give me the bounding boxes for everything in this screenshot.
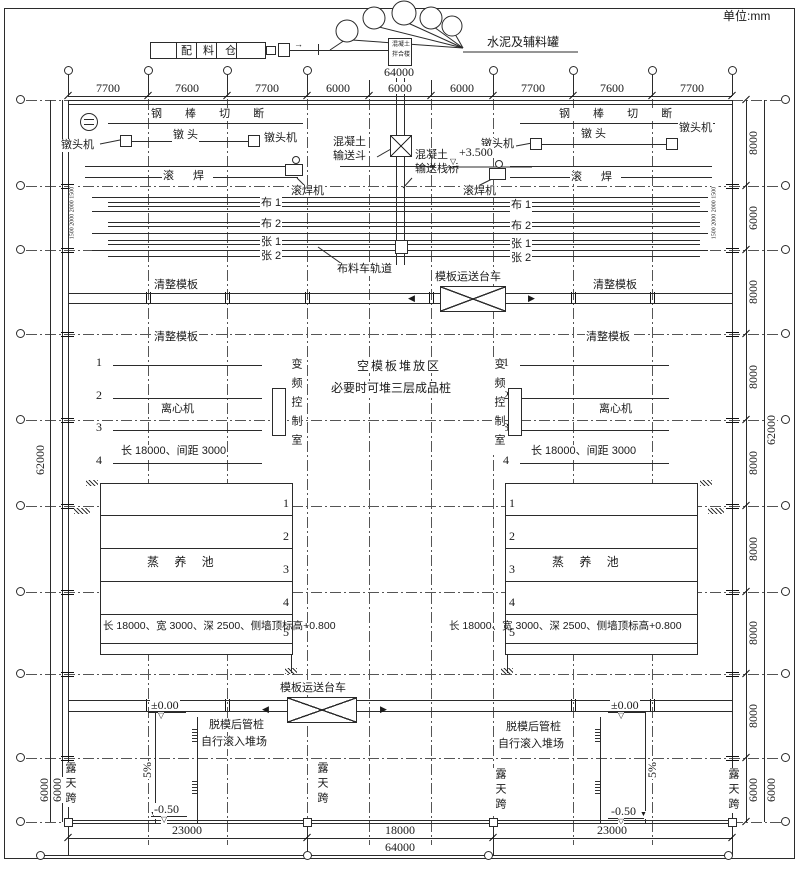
bottom-dim: 23000: [171, 824, 203, 836]
pool-divider: [505, 643, 698, 644]
heading-machine-label: 镦头机: [263, 132, 298, 145]
elevation-underline: [151, 816, 187, 817]
conveyor-arrow-icon: →: [294, 40, 303, 49]
grid-bubble: [781, 817, 790, 826]
bubble-stem: [732, 75, 733, 96]
grid-bubble: [303, 851, 312, 860]
grid-bubble: [16, 817, 25, 826]
grid-column-line: [369, 80, 370, 845]
track-arrow-left-icon: ◀: [408, 294, 415, 303]
heading-line: [542, 144, 666, 145]
top-dim: 7700: [95, 82, 121, 94]
yard-hatch: [595, 780, 600, 794]
roll-weld-label: 滚 焊: [570, 171, 621, 184]
hopper-label-1: 混凝土: [332, 136, 367, 149]
grid-bubble: [16, 95, 25, 104]
pool-divider: [505, 581, 698, 582]
formwork-trolley: [440, 286, 506, 312]
pool-hatch: [285, 668, 297, 674]
grid-bubble: [16, 181, 25, 190]
grid-bubble: [569, 66, 578, 75]
bottom-overall-line: [40, 855, 732, 856]
building-bottom-wall: [68, 820, 732, 821]
pool-hatch: [700, 480, 712, 486]
axis-tick: [726, 184, 739, 189]
silo-divider: [176, 42, 177, 59]
grid-bubble: [144, 66, 153, 75]
elevation-underline: [608, 818, 644, 819]
centrifuge-label: 离心机: [160, 403, 195, 416]
axis-tick: [61, 504, 74, 509]
grid-row-line: [732, 100, 784, 101]
axis-tick: [61, 248, 74, 253]
yard-hatch: [595, 728, 600, 742]
axis-tick: [61, 672, 74, 677]
axis-tick: [61, 418, 74, 423]
axis-tick: [726, 504, 739, 509]
right-bottom-dim: 6000: [747, 777, 759, 803]
pool-hatch: [86, 480, 98, 486]
grid-row-line: [26, 758, 784, 759]
payoff-detail: [84, 124, 94, 125]
bed-label-zhang2: 张 2: [260, 250, 282, 263]
track-arrow-right-icon: ▶: [528, 294, 535, 303]
steam-pool-label: 蒸 养 池: [551, 556, 626, 569]
pool-divider: [100, 614, 293, 615]
grid-bubble: [781, 329, 790, 338]
centrifuge-line: [113, 398, 262, 399]
elevation-underline: [148, 712, 186, 713]
left-dim-line: [50, 100, 51, 822]
grid-bubble: [223, 66, 232, 75]
bed-label-zhang1: 张 1: [510, 238, 532, 251]
left-overall-dim: 62000: [34, 444, 46, 476]
tank-circle: [392, 1, 416, 25]
mixing-tower-label-1: 混凝土: [390, 42, 412, 49]
mixing-tower-label-2: 拌合楼: [390, 52, 412, 59]
grid-row-line: [26, 822, 68, 823]
grid-row-line: [26, 334, 784, 335]
grid-square-marker: [489, 818, 498, 827]
roll-weld-line: [510, 166, 712, 167]
line-number: 1: [95, 356, 103, 368]
bed-label-bu1: 布 1: [260, 197, 282, 210]
clean-formwork-label: 清整模板: [153, 331, 199, 344]
factory-layout-drawing: 单位:mm: [0, 0, 800, 869]
bed-line: [92, 211, 708, 212]
payoff-detail: [84, 119, 94, 120]
grid-bubble: [781, 181, 790, 190]
distribution-cart: [395, 240, 408, 254]
axis-tick: [726, 590, 739, 595]
bubble-stem: [68, 75, 69, 96]
pool-number: 4: [508, 596, 516, 608]
right-dim: 8000: [747, 364, 759, 390]
grid-bubble: [728, 66, 737, 75]
axis-tick: [61, 756, 74, 761]
pool-divider: [100, 515, 293, 516]
grid-bubble: [16, 669, 25, 678]
axis-tick: [726, 418, 739, 423]
right-dim: 8000: [747, 279, 759, 305]
trolley-track: [68, 293, 732, 294]
concrete-hopper-box: [390, 135, 412, 157]
slope-label: 5%: [646, 761, 658, 779]
open-span-label: 露天跨: [63, 762, 76, 807]
elevation-zero: ±0.00: [610, 699, 640, 711]
bed-line: [92, 197, 708, 198]
elevation-neg: -0.50: [610, 805, 637, 817]
left-dim-line: [62, 100, 63, 822]
yard-line: [197, 717, 198, 823]
axis-tick: [726, 756, 739, 761]
pool-number: 2: [508, 530, 516, 542]
grid-bubble: [489, 66, 498, 75]
right-overall-dim-line: [764, 100, 765, 822]
bed-rail: [108, 222, 700, 223]
conveyor-hopper-box: [278, 43, 290, 57]
heading-machine-label: 镦头机: [678, 122, 713, 135]
axis-tick: [726, 332, 739, 337]
grid-row-line: [732, 822, 784, 823]
centrifuge-line: [520, 463, 669, 464]
axis-tick: [61, 332, 74, 337]
grid-row-line: [26, 420, 784, 421]
axis-tick: [61, 590, 74, 595]
bed-label-bu2: 布 2: [510, 220, 532, 233]
building-top-wall: [68, 100, 732, 101]
cart-track-label: 布料车轨道: [336, 263, 393, 276]
heading-label: 镦 头: [172, 129, 199, 142]
top-dim: 7700: [254, 82, 280, 94]
bed-label-zhang2: 张 2: [510, 252, 532, 265]
top-dim: 6000: [325, 82, 351, 94]
heading-machine-box: [120, 135, 132, 147]
centrifuge-line: [113, 365, 262, 366]
vfd-room-label: 变频控制室: [289, 358, 302, 453]
vfd-room-label: 变频控制室: [492, 358, 505, 453]
demold-label-1: 脱模后管桩: [505, 721, 562, 734]
pool-number: 4: [282, 596, 290, 608]
demold-label-2: 自行滚入堆场: [497, 738, 565, 751]
conveyor-line: [290, 50, 388, 51]
centrifuge-line: [113, 463, 262, 464]
bubble-stem: [148, 75, 149, 96]
pool-hatch: [708, 508, 724, 514]
elevation-zero: ±0.00: [150, 699, 180, 711]
yard-line: [600, 717, 601, 823]
track-arrow-right-icon: ▶: [380, 705, 387, 714]
bridge-elevation: +3.500: [458, 146, 494, 158]
vfd-room-box: [272, 388, 286, 436]
top-dim: 7600: [599, 82, 625, 94]
bubble-stem: [307, 75, 308, 96]
pool-divider: [505, 548, 698, 549]
grid-bubble: [781, 415, 790, 424]
line-number: 4: [95, 454, 103, 466]
heading-label: 镦 头: [580, 128, 607, 141]
grid-square-marker: [303, 818, 312, 827]
bed-edge-dims: 1500 2000 2000 1500: [70, 186, 77, 241]
tank-circle: [336, 20, 358, 42]
dim-extension: [68, 823, 69, 855]
grid-bubble: [781, 753, 790, 762]
trolley-track: [68, 303, 732, 304]
bridge-label-1: 混凝土: [414, 149, 449, 162]
top-dim-line: [68, 96, 732, 97]
bed-rail: [108, 206, 700, 207]
top-dim: 7700: [520, 82, 546, 94]
wire-payoff-machine: [80, 113, 98, 131]
right-dim: 8000: [747, 450, 759, 476]
slope-label: 5%: [141, 761, 153, 779]
grid-bubble: [36, 851, 45, 860]
grid-bubble: [16, 415, 25, 424]
pool-number: 2: [282, 530, 290, 542]
pool-divider: [100, 643, 293, 644]
batching-silo-label: 配 料 仓: [180, 45, 241, 58]
steam-pool-note: 长 18000、宽 3000、深 2500、侧墙顶标高+0.800: [448, 620, 683, 633]
centrifuge-line: [520, 398, 669, 399]
bottom-overall-dim: 64000: [384, 841, 416, 853]
grid-row-line: [26, 186, 784, 187]
bed-rail: [108, 256, 700, 257]
bottom-dim: 18000: [384, 824, 416, 836]
bubble-stem: [652, 75, 653, 96]
top-dim: 7600: [174, 82, 200, 94]
pool-hatch: [74, 508, 90, 514]
pool-divider: [100, 548, 293, 549]
stacking-area-label-1: 空模板堆放区: [356, 360, 442, 373]
grid-column-line: [431, 80, 432, 845]
line-number: 4: [502, 454, 510, 466]
building-right-wall: [732, 100, 733, 823]
yard-hatch: [192, 728, 197, 742]
roll-welder-head: [495, 160, 503, 168]
cutting-bench-line: [108, 123, 303, 124]
grid-square-marker: [64, 818, 73, 827]
steam-pool-label: 蒸 养 池: [146, 556, 221, 569]
right-dim: 6000: [747, 205, 759, 231]
right-dim: 8000: [747, 130, 759, 156]
grid-bubble: [16, 245, 25, 254]
grid-bubble: [303, 66, 312, 75]
tank-circle: [363, 7, 385, 29]
roll-weld-label: 滚 焊: [162, 170, 213, 183]
clean-formwork-label: 清整模板: [153, 279, 199, 292]
demold-label-1: 脱模后管桩: [208, 719, 265, 732]
grid-bubble: [16, 501, 25, 510]
roll-welder-body: [489, 168, 506, 180]
dim-extension: [732, 823, 733, 855]
dim-extension: [493, 823, 494, 855]
elevation-mark-icon: ▽: [450, 158, 456, 166]
tank-circle: [420, 7, 442, 29]
stacking-area-label-2: 必要时可堆三层成品桩: [330, 382, 452, 395]
roll-welder-head: [292, 156, 300, 164]
right-dim: 8000: [747, 703, 759, 729]
right-bottom-dim: 6000: [765, 777, 777, 803]
centrifuge-note: 长 18000、间距 3000: [530, 445, 637, 458]
elevation-mark-icon: ▽: [618, 712, 624, 720]
bottom-dim: 23000: [596, 824, 628, 836]
grid-bubble: [648, 66, 657, 75]
building-top-wall-inner: [68, 104, 732, 105]
top-dim: 6000: [387, 82, 413, 94]
grid-bubble: [781, 669, 790, 678]
steam-pool-note: 长 18000、宽 3000、深 2500、侧墙顶标高+0.800: [102, 620, 337, 633]
right-overall-dim: 62000: [765, 414, 777, 446]
pool-number: 1: [282, 497, 290, 509]
elevation-mark-icon: ▽: [158, 712, 164, 720]
centrifuge-line: [520, 365, 669, 366]
conveyor-tick: [318, 44, 319, 55]
grid-bubble: [781, 95, 790, 104]
open-span-label: 露天跨: [726, 768, 739, 813]
centrifuge-line: [113, 430, 262, 431]
pool-divider: [505, 614, 698, 615]
grid-bubble: [16, 329, 25, 338]
silo-connector: [266, 46, 276, 55]
bed-line: [92, 233, 708, 234]
heading-machine-label: 镦头机: [60, 139, 95, 152]
right-dim: 8000: [747, 536, 759, 562]
centrifuge-note: 长 18000、间距 3000: [120, 445, 227, 458]
bed-label-zhang1: 张 1: [260, 236, 282, 249]
clean-formwork-label: 清整模板: [585, 331, 631, 344]
heading-machine-box: [248, 135, 260, 147]
hopper-label-2: 输送斗: [332, 150, 367, 163]
axis-tick: [726, 248, 739, 253]
centrifuge-label: 离心机: [598, 403, 633, 416]
grid-bubble: [64, 66, 73, 75]
bed-rail: [108, 202, 700, 203]
left-bottom-dim: 6000: [38, 777, 50, 803]
line-number: 3: [95, 421, 103, 433]
roll-welder-body: [285, 164, 303, 176]
grid-bubble: [484, 851, 493, 860]
bubble-stem: [369, 80, 370, 96]
bubble-stem: [431, 80, 432, 96]
bubble-stem: [493, 75, 494, 96]
trolley-label: 模板运送台车: [434, 271, 502, 284]
roll-weld-line: [85, 166, 298, 167]
top-dim: 6000: [449, 82, 475, 94]
bed-edge-dims: 1500 2000 2000 1500: [712, 186, 719, 241]
steel-cut-label-right: 钢 棒 切 断: [558, 108, 683, 121]
line-number: 2: [95, 389, 103, 401]
cement-tanks-label: 水泥及辅料罐: [486, 36, 560, 49]
grid-bubble: [724, 851, 733, 860]
elevation-underline: [608, 712, 646, 713]
pool-number: 3: [508, 563, 516, 575]
bubble-stem: [227, 75, 228, 96]
grid-bubble: [781, 245, 790, 254]
grid-bubble: [781, 587, 790, 596]
tank-circle: [442, 16, 462, 36]
grid-square-marker: [728, 818, 737, 827]
open-span-label: 露天跨: [493, 768, 506, 813]
bottom-dim-line: [68, 838, 732, 839]
yard-hatch: [192, 780, 197, 794]
left-bottom-dim: 6000: [51, 777, 63, 803]
pool-number: 3: [282, 563, 290, 575]
heading-machine-box: [530, 138, 542, 150]
top-dim: 7700: [679, 82, 705, 94]
pool-number: 1: [508, 497, 516, 509]
bubble-stem: [573, 75, 574, 96]
grid-row-line: [26, 674, 784, 675]
open-span-label: 露天跨: [315, 762, 328, 807]
bed-label-bu1: 布 1: [510, 199, 532, 212]
grid-bubble: [781, 501, 790, 510]
steel-cut-label-left: 钢 棒 切 断: [150, 108, 275, 121]
track-arrow-left-icon: ◀: [262, 705, 269, 714]
pool-divider: [505, 515, 698, 516]
grid-bubble: [16, 587, 25, 596]
formwork-trolley: [287, 697, 357, 723]
top-overall-dim: 64000: [383, 66, 415, 78]
elevation-neg: -0.50: [153, 803, 180, 815]
pool-hatch: [501, 668, 513, 674]
right-dim: 8000: [747, 620, 759, 646]
trolley-label: 模板运送台车: [279, 682, 347, 695]
grid-bubble: [16, 753, 25, 762]
elevation-mark-icon: ▽: [161, 816, 167, 824]
centrifuge-line: [520, 430, 669, 431]
bed-rail: [108, 226, 700, 227]
clean-formwork-label: 清整模板: [592, 279, 638, 292]
heading-machine-box: [666, 138, 678, 150]
axis-tick: [726, 672, 739, 677]
pool-divider: [100, 581, 293, 582]
demold-label-2: 自行滚入堆场: [200, 736, 268, 749]
bed-label-bu2: 布 2: [260, 218, 282, 231]
vfd-room-box: [508, 388, 522, 436]
